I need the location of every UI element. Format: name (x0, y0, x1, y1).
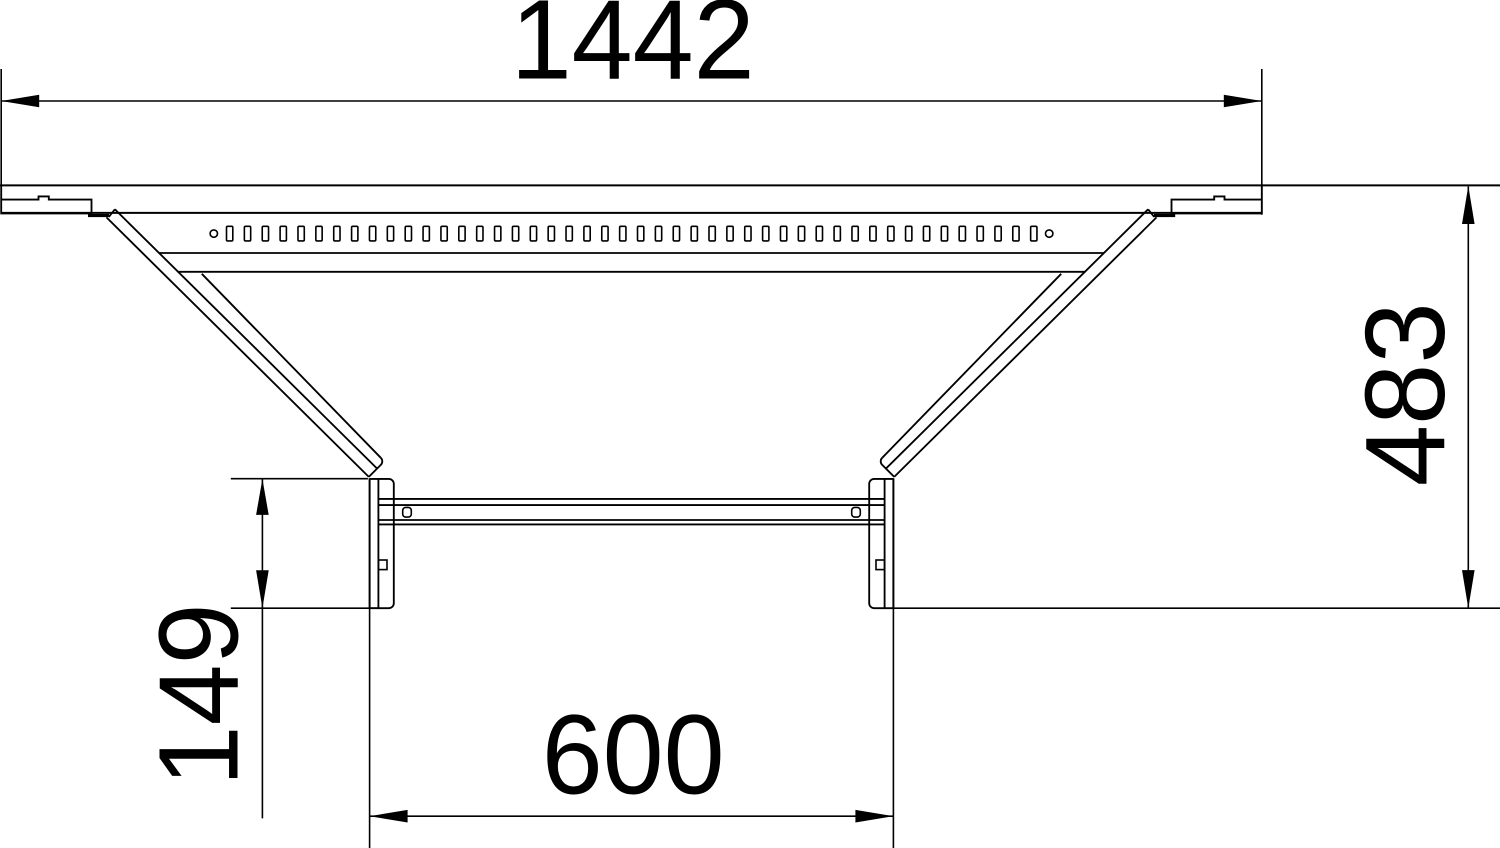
svg-text:149: 149 (136, 603, 262, 786)
svg-text:483: 483 (1342, 302, 1468, 486)
svg-text:600: 600 (542, 691, 725, 817)
svg-text:1442: 1442 (511, 0, 755, 103)
